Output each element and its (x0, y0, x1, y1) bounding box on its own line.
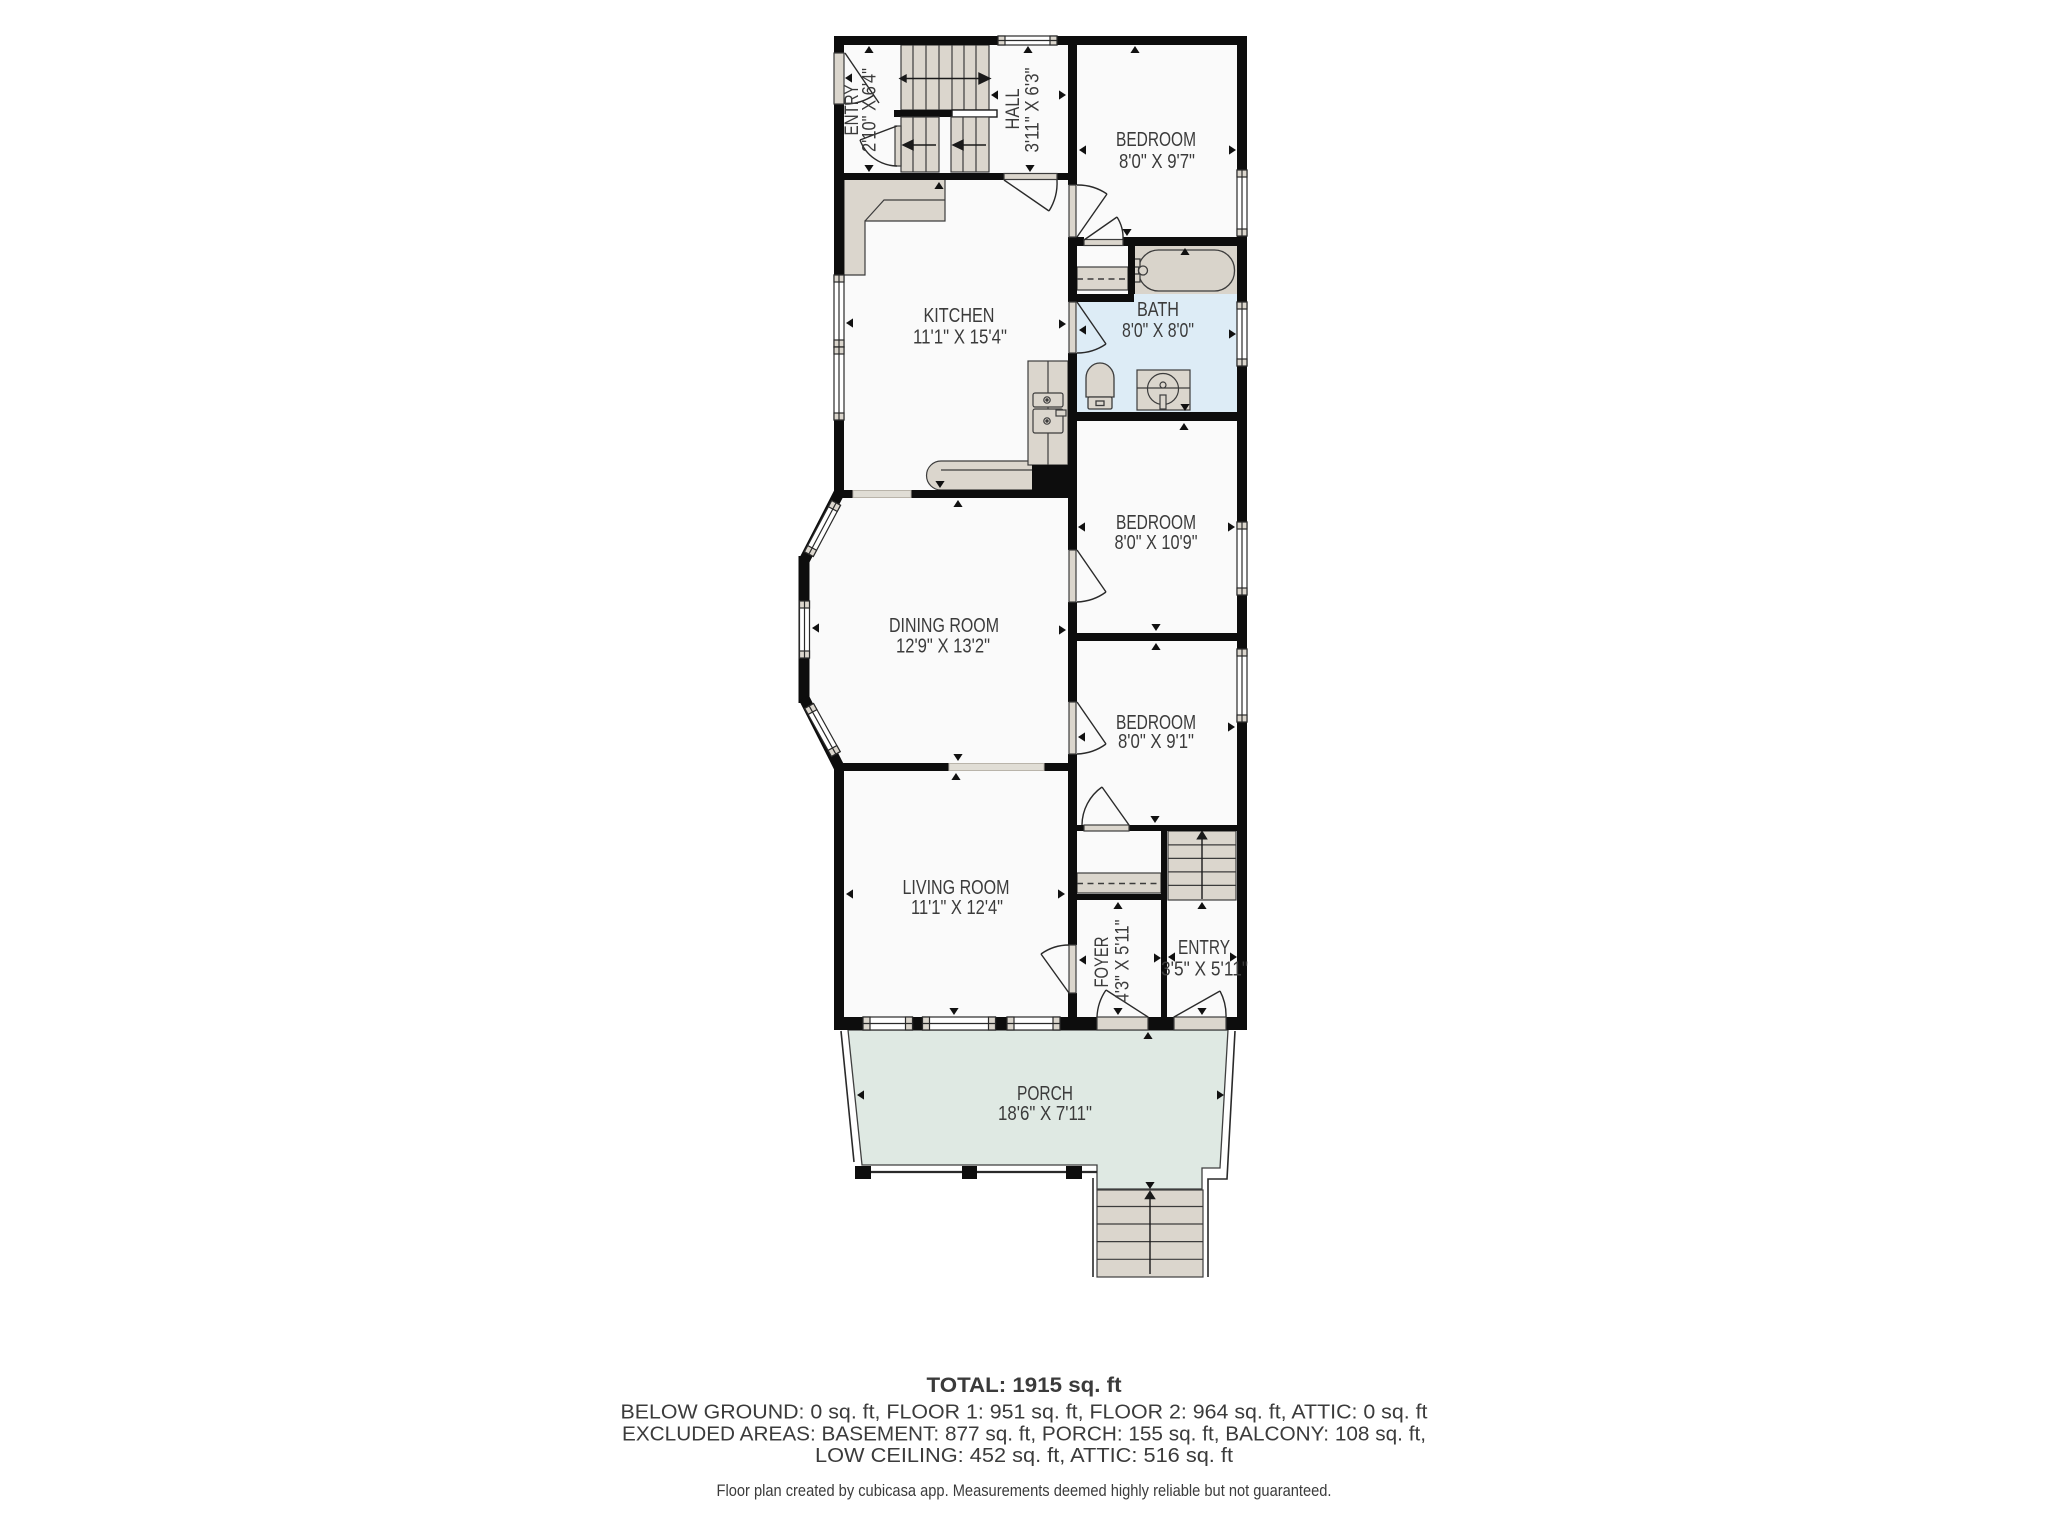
svg-text:3'5" X 5'11": 3'5" X 5'11" (1161, 959, 1248, 981)
svg-text:8'0" X 9'1": 8'0" X 9'1" (1118, 731, 1194, 753)
svg-text:12'9" X 13'2": 12'9" X 13'2" (896, 636, 990, 658)
svg-text:BELOW GROUND: 0 sq. ft, FLOOR: BELOW GROUND: 0 sq. ft, FLOOR 1: 951 sq.… (621, 1401, 1428, 1424)
svg-text:BEDROOM: BEDROOM (1116, 129, 1196, 151)
svg-text:LIVING ROOM: LIVING ROOM (903, 877, 1010, 899)
svg-text:3'11" X 6'3": 3'11" X 6'3" (1023, 68, 1044, 153)
svg-text:8'0" X 8'0": 8'0" X 8'0" (1122, 320, 1194, 342)
svg-text:8'0" X 10'9": 8'0" X 10'9" (1115, 532, 1198, 554)
svg-text:DINING ROOM: DINING ROOM (889, 615, 999, 637)
svg-text:BATH: BATH (1137, 299, 1179, 321)
svg-text:8'0" X 9'7": 8'0" X 9'7" (1119, 151, 1195, 173)
svg-text:11'1" X 15'4": 11'1" X 15'4" (913, 327, 1007, 349)
svg-text:FOYER: FOYER (1092, 937, 1113, 988)
svg-text:Floor plan created by cubicasa: Floor plan created by cubicasa app. Meas… (717, 1482, 1332, 1500)
svg-text:KITCHEN: KITCHEN (924, 305, 995, 327)
svg-text:PORCH: PORCH (1017, 1083, 1073, 1105)
svg-text:18'6" X 7'11": 18'6" X 7'11" (998, 1103, 1092, 1125)
svg-text:BEDROOM: BEDROOM (1116, 512, 1196, 534)
svg-text:TOTAL: 1915 sq. ft: TOTAL: 1915 sq. ft (927, 1374, 1122, 1397)
svg-text:2'10" X 6'4": 2'10" X 6'4" (860, 68, 881, 152)
svg-text:HALL: HALL (1003, 89, 1024, 130)
svg-text:11'1" X 12'4": 11'1" X 12'4" (911, 897, 1003, 919)
svg-text:LOW CEILING: 452 sq. ft, ATTIC: LOW CEILING: 452 sq. ft, ATTIC: 516 sq. … (815, 1444, 1233, 1467)
svg-text:ENTRY: ENTRY (1178, 937, 1230, 959)
svg-text:4'3" X 5'11": 4'3" X 5'11" (1113, 920, 1134, 1003)
svg-text:EXCLUDED AREAS: BASEMENT: 877: EXCLUDED AREAS: BASEMENT: 877 sq. ft, PO… (622, 1423, 1426, 1446)
